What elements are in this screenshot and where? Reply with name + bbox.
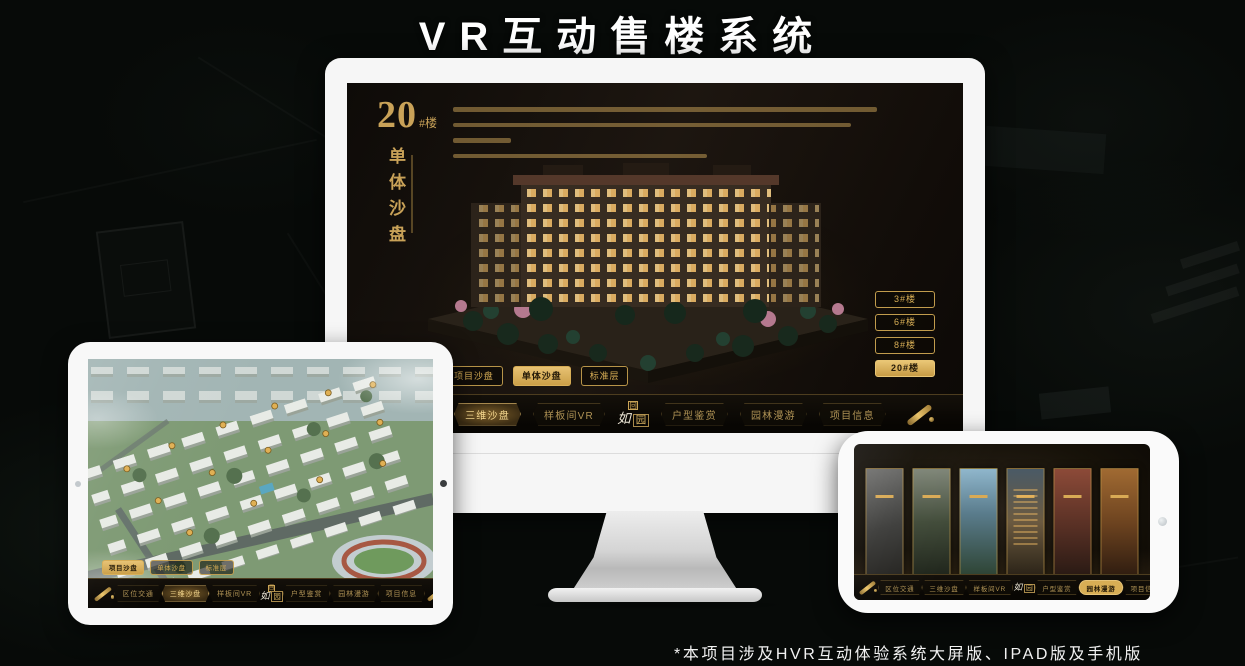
tablet-device: 项目沙盘 单体沙盘 标准层 区位交通 三维沙盘 样板间VR 回 如园 户型鉴赏 … — [68, 342, 453, 625]
nav-item-garden-roam[interactable]: 园林漫游 — [330, 585, 377, 601]
home-button[interactable] — [440, 480, 447, 487]
tablet-subtabs: 项目沙盘 单体沙盘 标准层 — [102, 560, 234, 575]
nav-item-3d-sandbox[interactable]: 三维沙盘 — [454, 403, 521, 426]
nav-item-garden-roam[interactable]: 园林漫游 — [740, 403, 807, 426]
nav-item-project-info[interactable]: 项目信息 — [819, 403, 886, 426]
logo-char-2: 园 — [271, 591, 283, 602]
nav-item-project-info[interactable]: 项目信息 — [1123, 580, 1150, 596]
building-number: 20 — [377, 94, 417, 136]
scene-panel[interactable] — [1101, 468, 1139, 576]
scene-panel[interactable] — [866, 468, 904, 576]
subtab-standard-floor[interactable]: 标准层 — [199, 560, 234, 575]
nav-item-location[interactable]: 区位交通 — [114, 585, 161, 601]
scene-panel[interactable] — [960, 468, 998, 576]
background-sign-board — [96, 221, 197, 339]
logo-char-1: 如 — [617, 411, 631, 426]
subtab-single-sandbox[interactable]: 单体沙盘 — [513, 366, 571, 386]
camera-icon — [1158, 517, 1167, 526]
floor-button-20[interactable]: 20#楼 — [875, 360, 935, 377]
panel-label — [1111, 495, 1129, 498]
phone-screen: 区位交通 三维沙盘 样板间VR 如园 户型鉴赏 园林漫游 项目信息 — [854, 444, 1150, 600]
subtab-single-sandbox[interactable]: 单体沙盘 — [150, 560, 192, 575]
scroll-icon[interactable] — [903, 406, 935, 422]
nav-item-showroom-vr[interactable]: 样板间VR — [966, 580, 1013, 596]
panel-label — [1017, 495, 1035, 498]
scroll-icon[interactable] — [92, 588, 114, 599]
scene-panel[interactable] — [913, 468, 951, 576]
stage: VR互动售楼系统 20#楼 单体沙盘 — [0, 0, 1245, 666]
tablet-screen: 项目沙盘 单体沙盘 标准层 区位交通 三维沙盘 样板间VR 回 如园 户型鉴赏 … — [88, 359, 433, 608]
panel-label — [876, 495, 894, 498]
scroll-icon[interactable] — [425, 588, 433, 599]
logo-char-1: 如 — [1013, 582, 1022, 592]
brand-logo: 回 如园 — [617, 401, 649, 427]
panel-label — [1064, 495, 1082, 498]
background-building — [1039, 386, 1111, 419]
floor-button-group: 3#楼 6#楼 8#楼 20#楼 — [875, 291, 935, 377]
subtab-standard-floor[interactable]: 标准层 — [581, 366, 629, 386]
footnote-text: *本项目涉及HVR互动体验系统大屏版、IPAD版及手机版 — [674, 640, 1143, 664]
background-building — [1151, 286, 1240, 323]
brand-logo: 回 如园 — [260, 585, 283, 603]
tablet-main-nav: 区位交通 三维沙盘 样板间VR 回 如园 户型鉴赏 园林漫游 项目信息 — [88, 578, 433, 608]
scene-panel-gallery — [866, 468, 1139, 576]
nav-item-showroom-vr[interactable]: 样板间VR — [533, 403, 605, 426]
monitor-stand-base — [548, 588, 762, 602]
floor-button-3[interactable]: 3#楼 — [875, 291, 935, 308]
logo-char-2: 园 — [633, 414, 649, 427]
background-road-line — [23, 139, 317, 203]
nav-item-showroom-vr[interactable]: 样板间VR — [209, 585, 260, 601]
subtab-project-sandbox[interactable]: 项目沙盘 — [102, 560, 144, 575]
building-number-suffix: #楼 — [419, 116, 437, 130]
scroll-icon[interactable] — [857, 582, 878, 592]
background-building — [984, 126, 1106, 174]
scene-panel[interactable] — [1054, 468, 1092, 576]
floor-button-8[interactable]: 8#楼 — [875, 337, 935, 354]
logo-char-2: 园 — [1024, 584, 1035, 593]
nav-item-garden-roam[interactable]: 园林漫游 — [1079, 580, 1123, 596]
building-3d-render[interactable] — [413, 141, 883, 385]
seal-icon: 回 — [628, 401, 637, 410]
camera-icon — [75, 481, 81, 487]
scene-panel[interactable] — [1007, 468, 1045, 576]
sandbox-subtabs: 项目沙盘 单体沙盘 标准层 — [445, 366, 628, 386]
page-title: VR互动售楼系统 — [0, 4, 1245, 62]
building-subtitle-vertical: 单体沙盘 — [383, 147, 408, 251]
nav-item-floorplans[interactable]: 户型鉴赏 — [1035, 580, 1079, 596]
nav-item-floorplans[interactable]: 户型鉴赏 — [661, 403, 728, 426]
panel-label — [923, 495, 941, 498]
panel-label — [970, 495, 988, 498]
floor-button-6[interactable]: 6#楼 — [875, 314, 935, 331]
building-number-heading: 20#楼 — [377, 93, 437, 137]
subtab-project-sandbox[interactable]: 项目沙盘 — [445, 366, 503, 386]
phone-main-nav: 区位交通 三维沙盘 样板间VR 如园 户型鉴赏 园林漫游 项目信息 — [854, 574, 1150, 600]
phone-device: 区位交通 三维沙盘 样板间VR 如园 户型鉴赏 园林漫游 项目信息 — [838, 431, 1179, 613]
nav-item-3d-sandbox[interactable]: 三维沙盘 — [162, 585, 209, 601]
nav-item-floorplans[interactable]: 户型鉴赏 — [283, 585, 330, 601]
nav-item-3d-sandbox[interactable]: 三维沙盘 — [922, 580, 966, 596]
logo-char-1: 如 — [260, 592, 269, 602]
nav-item-location[interactable]: 区位交通 — [878, 580, 922, 596]
monitor-stand — [572, 511, 738, 591]
brand-logo: 如园 — [1013, 583, 1034, 593]
nav-item-project-info[interactable]: 项目信息 — [378, 585, 425, 601]
